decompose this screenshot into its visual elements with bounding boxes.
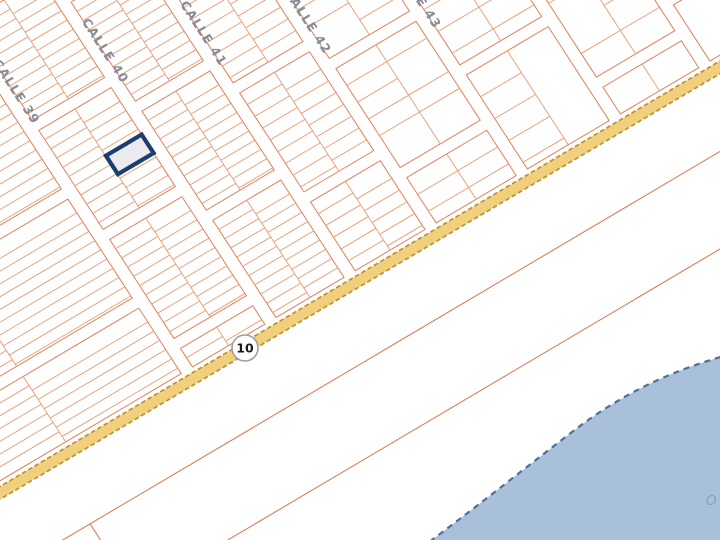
water-label: O: [706, 493, 717, 509]
route-badge-number: 10: [236, 341, 254, 356]
map-svg[interactable]: CALLE 39CALLE 40CALLE 41CALLE 42CALLE 43…: [0, 0, 720, 540]
map-canvas[interactable]: CALLE 39CALLE 40CALLE 41CALLE 42CALLE 43…: [0, 0, 720, 540]
route-badge-layer: 10: [232, 335, 258, 361]
